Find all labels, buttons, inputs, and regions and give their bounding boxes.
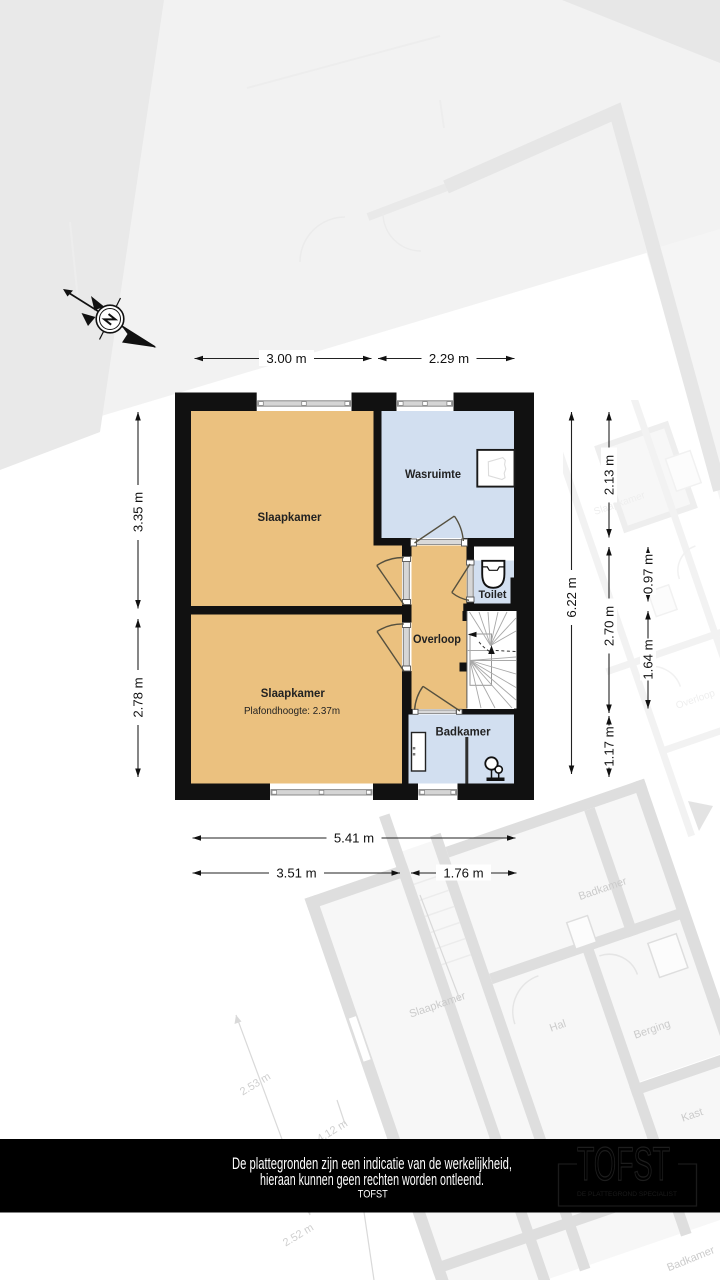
svg-text:TOFST: TOFST — [577, 1137, 670, 1190]
svg-text:Slaapkamer: Slaapkamer — [258, 510, 322, 524]
svg-text:Toilet: Toilet — [479, 589, 507, 601]
svg-text:Overloop: Overloop — [413, 632, 461, 646]
svg-text:6.22 m: 6.22 m — [564, 577, 579, 617]
svg-text:Badkamer: Badkamer — [436, 725, 491, 739]
svg-text:DE PLATTEGROND SPECIALIST: DE PLATTEGROND SPECIALIST — [577, 1192, 677, 1198]
svg-text:hieraan kunnen geen rechten wo: hieraan kunnen geen rechten worden ontle… — [260, 1171, 484, 1189]
svg-text:5.41 m: 5.41 m — [334, 831, 374, 846]
svg-text:1.64 m: 1.64 m — [641, 639, 656, 679]
svg-text:2.29 m: 2.29 m — [429, 351, 469, 366]
svg-text:2.70 m: 2.70 m — [602, 606, 617, 646]
svg-text:Overloop: Overloop — [675, 688, 717, 712]
svg-text:0.97 m: 0.97 m — [641, 554, 656, 594]
svg-text:1.76 m: 1.76 m — [443, 866, 483, 881]
svg-text:Badkamer: Badkamer — [665, 1244, 716, 1274]
svg-text:3.00 m: 3.00 m — [266, 351, 306, 366]
svg-text:TOFST: TOFST — [358, 1189, 388, 1201]
svg-text:2.53 m: 2.53 m — [238, 1071, 273, 1099]
svg-text:Plafondhoogte: 2.37m: Plafondhoogte: 2.37m — [244, 705, 340, 717]
svg-text:Wasruimte: Wasruimte — [405, 467, 461, 481]
svg-text:3.35 m: 3.35 m — [131, 492, 146, 532]
svg-text:Slaapkamer: Slaapkamer — [261, 686, 325, 700]
svg-text:2.78 m: 2.78 m — [131, 677, 146, 717]
svg-text:2.13 m: 2.13 m — [602, 455, 617, 495]
svg-text:3.51 m: 3.51 m — [276, 866, 316, 881]
svg-text:1.17 m: 1.17 m — [602, 726, 617, 766]
svg-text:2.52 m: 2.52 m — [281, 1222, 316, 1250]
